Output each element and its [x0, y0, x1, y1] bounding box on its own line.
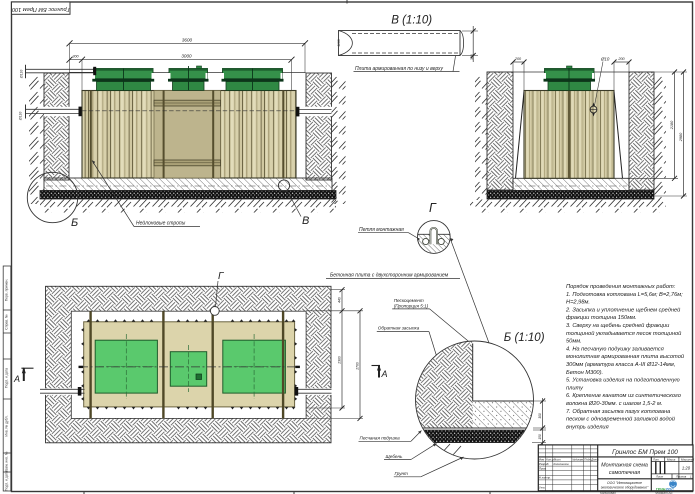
svg-text:Разраб.: Разраб.	[539, 462, 549, 466]
svg-text:Б: Б	[71, 217, 78, 229]
svg-text:300: 300	[72, 55, 79, 59]
svg-text:Н.контр.: Н.контр.	[539, 476, 551, 480]
svg-text:Справ. №: Справ. №	[5, 314, 9, 330]
svg-text:В: В	[302, 215, 309, 227]
svg-text:Нейлоновые стропы: Нейлоновые стропы	[136, 220, 186, 227]
svg-text:3600: 3600	[182, 37, 193, 42]
svg-text:Песчаная подушка: Песчаная подушка	[360, 436, 401, 441]
svg-text:Лит.: Лит.	[652, 458, 660, 462]
svg-text:№докум.: №докум.	[572, 457, 584, 461]
svg-text:Масштаб: Масштаб	[681, 458, 694, 462]
svg-text:200: 200	[617, 57, 625, 61]
svg-text:Обратная засыпка: Обратная засыпка	[378, 326, 420, 331]
svg-text:Гринлос БМ Прем 100: Гринлос БМ Прем 100	[612, 449, 678, 456]
svg-text:Петля монтажная: Петля монтажная	[359, 227, 404, 233]
svg-text:Грунт: Грунт	[395, 471, 409, 476]
svg-text:2180: 2180	[670, 120, 674, 130]
svg-text:Инв. № дубл.: Инв. № дубл.	[5, 415, 9, 436]
svg-text:2980: 2980	[679, 132, 683, 142]
svg-text:(Пропорция 5:1): (Пропорция 5:1)	[394, 303, 429, 308]
svg-text:Листов: Листов	[675, 475, 687, 479]
svg-text:Колесников: Колесников	[554, 462, 570, 466]
svg-text:Пров.: Пров.	[539, 467, 547, 471]
svg-text:Бетон М300).: Бетон М300).	[566, 370, 603, 376]
svg-text:монолитная армированная плита: монолитная армированная плита высотой	[566, 353, 685, 360]
svg-text:7. Обратная засыпка пазух котл: 7. Обратная засыпка пазух котлована	[566, 409, 670, 415]
svg-text:фракции толщина 150мм.: фракции толщина 150мм.	[566, 315, 637, 321]
svg-text:150: 150	[538, 434, 542, 440]
svg-text:плиту: плиту	[566, 385, 584, 391]
svg-text:2360: 2360	[338, 356, 342, 365]
svg-text:экологическое оборудование": экологическое оборудование"	[601, 485, 649, 489]
svg-text:1:20: 1:20	[682, 466, 691, 471]
svg-text:50мм.: 50мм.	[566, 339, 582, 345]
svg-text:внутрь изделия: внутрь изделия	[566, 424, 609, 430]
svg-text:Утв.: Утв.	[539, 485, 546, 489]
svg-text:Щебень: Щебень	[386, 454, 404, 459]
svg-text:А: А	[13, 374, 20, 384]
svg-text:волокна Ø20-30мм. с шагом 1,5-: волокна Ø20-30мм. с шагом 1,5-2 м.	[566, 401, 662, 407]
svg-text:Бетонная плита с двухсторонним: Бетонная плита с двухсторонним армирован…	[330, 273, 449, 279]
svg-text:300: 300	[538, 413, 542, 419]
svg-text:Масса: Масса	[667, 458, 676, 462]
svg-text:Взам. инв. №: Взам. инв. №	[5, 451, 9, 472]
svg-text:Ø110: Ø110	[19, 112, 23, 122]
svg-text:Ø10: Ø10	[600, 57, 610, 62]
svg-text:А: А	[381, 369, 388, 379]
svg-text:300мм (арматура класса А-III Ø: 300мм (арматура класса А-III Ø12-14мм,	[566, 362, 675, 368]
svg-text:толщиной укладывается песок то: толщиной укладывается песок толщиной	[566, 330, 682, 337]
svg-text:Монтажная схема: Монтажная схема	[601, 462, 648, 468]
svg-text:1. Подготовка котлована L=5,6м: 1. Подготовка котлована L=5,6м; B=2,76м;	[566, 292, 683, 298]
svg-text:Лист: Лист	[655, 475, 664, 479]
svg-text:Плита армированная по низу и в: Плита армированная по низу и верху	[355, 66, 443, 72]
svg-text:300: 300	[470, 54, 474, 60]
svg-text:1100: 1100	[337, 39, 341, 46]
svg-text:В (1:10): В (1:10)	[391, 15, 432, 27]
svg-text:Пескоцемент: Пескоцемент	[394, 298, 424, 303]
svg-text:6. Крепление канатом из синтет: 6. Крепление канатом из синтетического	[566, 393, 681, 399]
svg-text:200: 200	[514, 57, 522, 61]
svg-text:Перв. примен.: Перв. примен.	[5, 279, 9, 302]
svg-text:Лист: Лист	[553, 457, 562, 461]
svg-text:H=2,98м.: H=2,98м.	[566, 300, 590, 306]
svg-text:4. На песчаную подушку заливае: 4. На песчаную подушку заливается	[566, 346, 664, 352]
svg-text:Г: Г	[429, 201, 437, 215]
svg-text:Дата: Дата	[590, 457, 599, 461]
svg-text:Б (1:10): Б (1:10)	[504, 332, 545, 344]
svg-text:Гринлос БМ Прем 100: Гринлос БМ Прем 100	[11, 6, 69, 12]
svg-text:песком с одновременной заливко: песком с одновременной заливкой водой	[566, 416, 676, 423]
svg-text:3000: 3000	[181, 54, 192, 59]
svg-text:Порядок проведения монтажных р: Порядок проведения монтажных работ:	[566, 284, 676, 290]
svg-text:440: 440	[338, 297, 342, 303]
svg-text:самотечная: самотечная	[609, 470, 640, 476]
svg-text:Подп. и дата: Подп. и дата	[5, 368, 9, 388]
svg-text:2. Засыпка и уплотнение щебнем: 2. Засыпка и уплотнение щебнем средней	[565, 306, 681, 313]
svg-text:3. Сверху на щебень средней фр: 3. Сверху на щебень средней фракции	[566, 322, 670, 329]
svg-text:5. Установка изделия на подгот: 5. Установка изделия на подготовленную	[566, 378, 680, 384]
svg-text:Ø110: Ø110	[20, 70, 24, 80]
svg-text:Подп. и дата: Подп. и дата	[5, 471, 9, 491]
svg-text:2760: 2760	[356, 362, 360, 371]
svg-text:Изм: Изм	[539, 457, 544, 461]
